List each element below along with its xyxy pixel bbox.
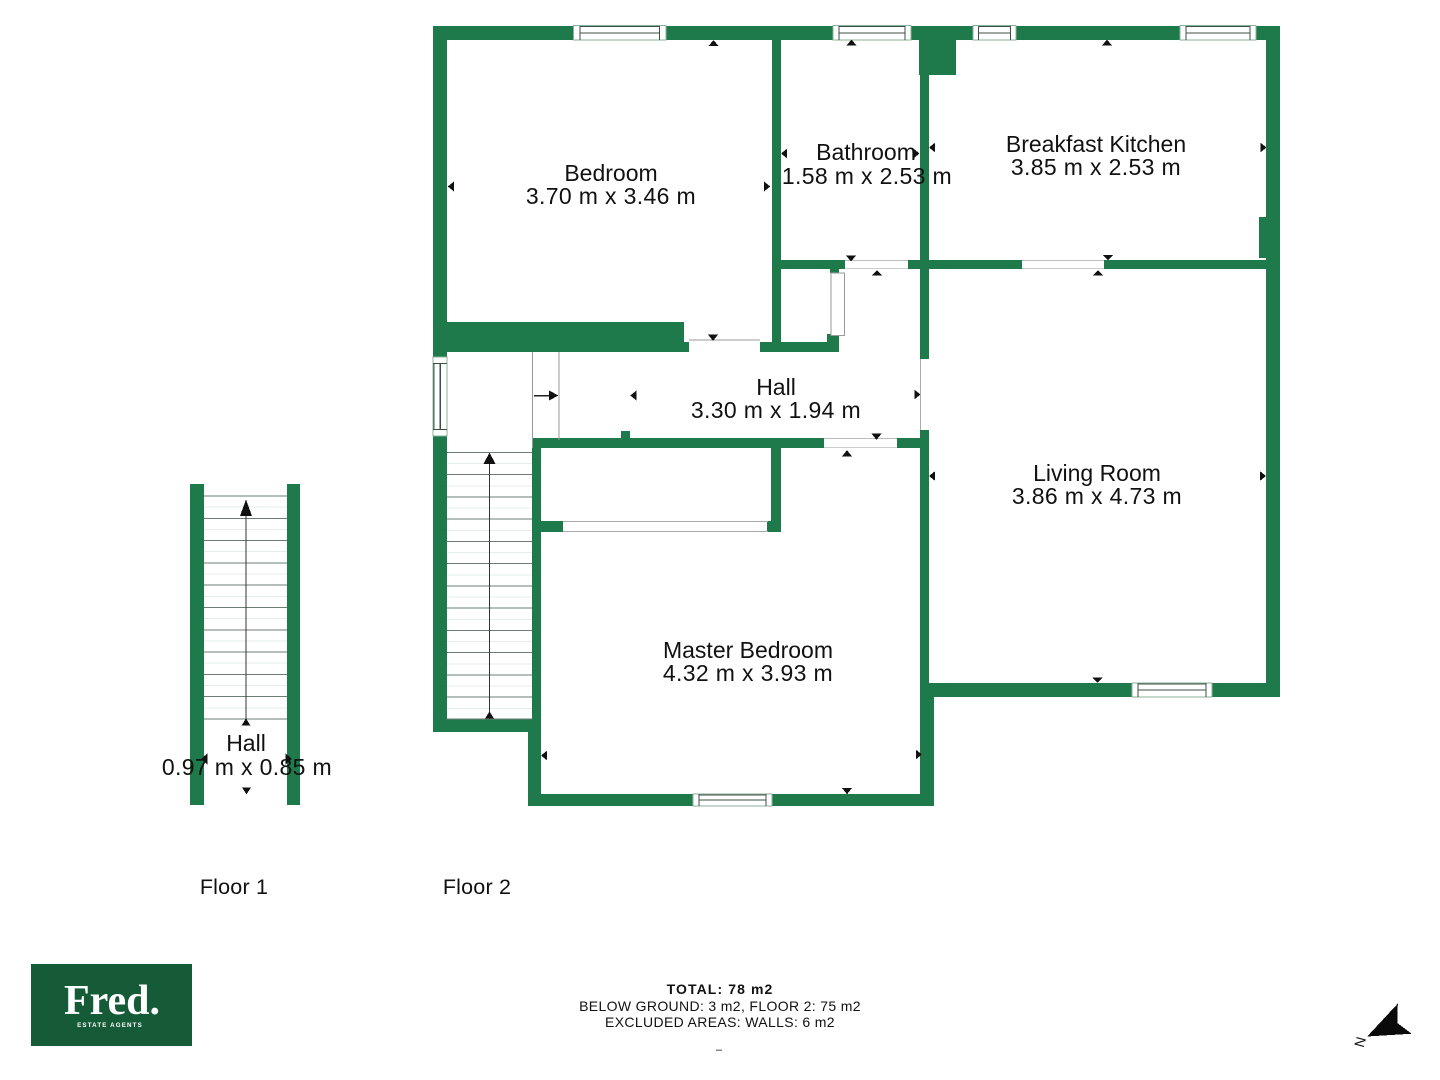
- svg-text:4.32 m x 3.93 m: 4.32 m x 3.93 m: [663, 660, 833, 686]
- svg-text:3.30 m x 1.94 m: 3.30 m x 1.94 m: [691, 397, 861, 423]
- svg-text:3.70 m x 3.46 m: 3.70 m x 3.46 m: [526, 183, 696, 209]
- svg-text:1.58 m x 2.53 m: 1.58 m x 2.53 m: [782, 163, 952, 189]
- svg-text:3.86 m x 4.73 m: 3.86 m x 4.73 m: [1012, 483, 1182, 509]
- svg-text:EXCLUDED AREAS: WALLS: 6 m2: EXCLUDED AREAS: WALLS: 6 m2: [605, 1014, 835, 1030]
- svg-text:3.85 m x 2.53 m: 3.85 m x 2.53 m: [1011, 154, 1181, 180]
- svg-text:Bathroom: Bathroom: [816, 139, 916, 165]
- svg-text:BELOW GROUND: 3 m2, FLOOR 2: 7: BELOW GROUND: 3 m2, FLOOR 2: 75 m2: [579, 998, 861, 1014]
- svg-text:0.97 m x 0.85 m: 0.97 m x 0.85 m: [162, 754, 332, 780]
- svg-text:Floor 2: Floor 2: [443, 875, 511, 899]
- svg-text:Floor 1: Floor 1: [200, 875, 268, 899]
- svg-text:TOTAL: 78 m2: TOTAL: 78 m2: [667, 981, 774, 997]
- svg-text:Fred.: Fred.: [64, 978, 160, 1024]
- svg-text:ESTATE AGENTS: ESTATE AGENTS: [77, 1022, 143, 1029]
- svg-text:Hall: Hall: [226, 730, 266, 756]
